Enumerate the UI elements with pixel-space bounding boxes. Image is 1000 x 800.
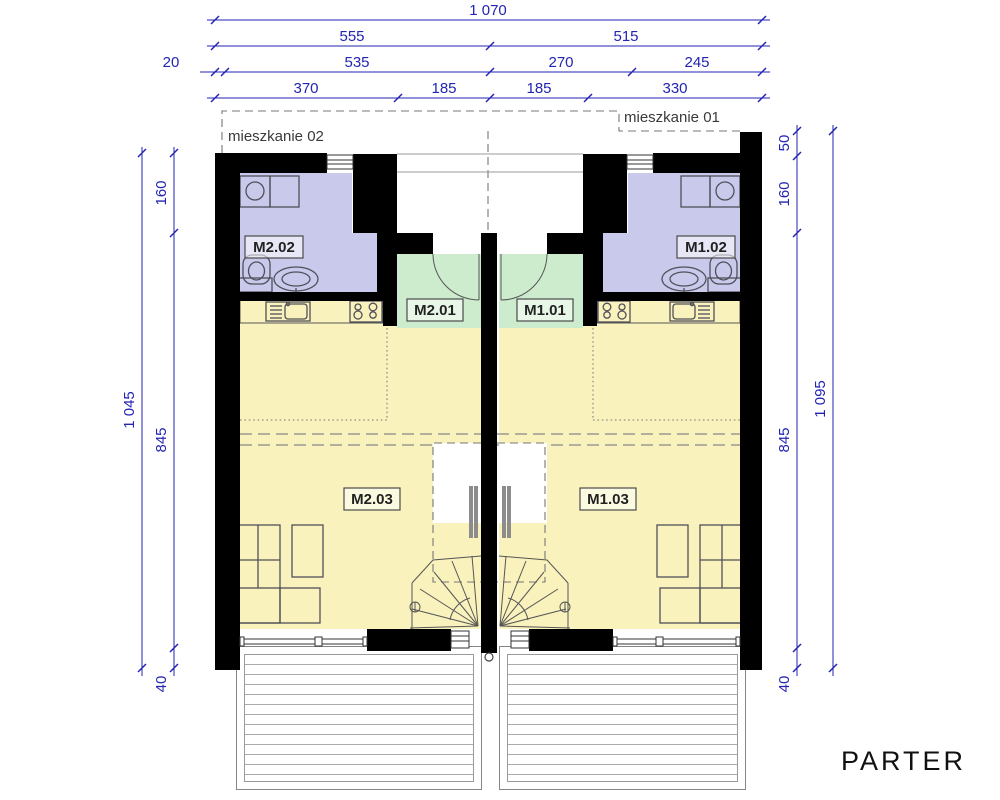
dimension-lines-top: 1 070 555 515 20 535 270 245 370 185 — [163, 2, 770, 102]
svg-text:M1.03: M1.03 — [587, 491, 629, 508]
dim-right-50: 50 — [776, 135, 793, 152]
svg-text:M2.02: M2.02 — [253, 239, 295, 256]
dim-top-515: 515 — [613, 28, 638, 45]
floor-plan-drawing: 1 070 555 515 20 535 270 245 370 185 — [0, 0, 1000, 800]
dim-top-535: 535 — [344, 54, 369, 71]
svg-text:M1.01: M1.01 — [524, 302, 566, 319]
unit01-name: mieszkanie 01 — [624, 109, 720, 126]
room-label-m2-01: M2.01 — [407, 299, 463, 321]
dim-top-370: 370 — [293, 80, 318, 97]
dim-top-555: 555 — [339, 28, 364, 45]
dim-top-20: 20 — [163, 54, 180, 71]
window-icon-bottom-right — [511, 631, 529, 648]
dim-left-40: 40 — [153, 676, 170, 693]
svg-text:M2.03: M2.03 — [351, 491, 393, 508]
dim-top-185a: 185 — [431, 80, 456, 97]
window-icon-top-right — [627, 155, 653, 169]
terrace-glazing-right — [613, 637, 740, 646]
room-label-m2-03: M2.03 — [344, 488, 400, 510]
room-label-m2-02: M2.02 — [245, 236, 303, 258]
dim-left-845: 845 — [153, 427, 170, 452]
dim-top-330: 330 — [662, 80, 687, 97]
svg-text:M2.01: M2.01 — [414, 302, 456, 319]
floor-plan-page: 1 070 555 515 20 535 270 245 370 185 — [0, 0, 1000, 800]
page-title: PARTER — [841, 746, 966, 776]
dim-top-245: 245 — [684, 54, 709, 71]
svg-text:M1.02: M1.02 — [685, 239, 727, 256]
terrace-glazing-left — [240, 637, 367, 646]
dim-left-total: 1 045 — [121, 391, 138, 429]
unit02-name: mieszkanie 02 — [228, 128, 324, 145]
room-label-m1-03: M1.03 — [580, 488, 636, 510]
window-icon-top-left — [327, 155, 353, 169]
dim-top-185b: 185 — [526, 80, 551, 97]
dim-right-40: 40 — [776, 676, 793, 693]
dim-right-160: 160 — [776, 181, 793, 206]
dim-top-total: 1 070 — [469, 2, 507, 19]
dim-top-270: 270 — [548, 54, 573, 71]
window-icon-bottom-left — [451, 631, 469, 648]
dimension-lines-left: 1 045 160 845 40 — [121, 147, 178, 692]
dim-right-845: 845 — [776, 427, 793, 452]
room-label-m1-01: M1.01 — [517, 299, 573, 321]
dim-right-total: 1 095 — [812, 380, 829, 418]
room-label-m1-02: M1.02 — [677, 236, 735, 258]
drainpipe-icon — [485, 653, 493, 661]
dimension-lines-right: 50 160 845 40 1 095 — [776, 125, 837, 692]
dim-left-160: 160 — [153, 180, 170, 205]
